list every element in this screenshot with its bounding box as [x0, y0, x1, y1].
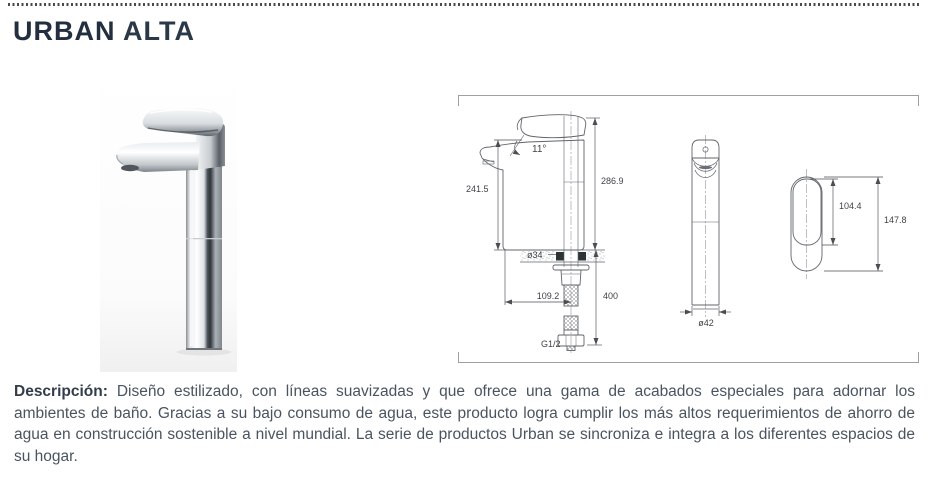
- product-photo-faucet: [100, 68, 237, 372]
- dim-hose-length: 400: [603, 291, 618, 301]
- side-view-dimensions: [494, 118, 602, 345]
- dim-thread-size: G1/2: [541, 339, 561, 349]
- description-text: Diseño estilizado, con líneas suavizadas…: [14, 383, 915, 465]
- faucet-reflection: [190, 170, 193, 346]
- dim-lever-length: 104.4: [839, 201, 862, 211]
- front-view: [692, 135, 719, 317]
- description-label: Descripción:: [14, 383, 108, 400]
- page-title-secondary: ALTA: [123, 16, 195, 46]
- dim-base-diameter: ø42: [698, 318, 714, 328]
- technical-drawing: 241.5 11° 286.9 ø34 109.2 400 G1/2 ø42: [458, 95, 919, 365]
- dim-overall-height: 286.9: [601, 176, 624, 186]
- product-description: Descripción: Diseño estilizado, con líne…: [14, 381, 915, 467]
- dim-handle-angle: 11°: [532, 144, 546, 155]
- dim-hose-offset: 109.2: [537, 291, 560, 301]
- page-title: URBAN ALTA: [13, 16, 195, 46]
- dim-body-height: 241.5: [466, 184, 489, 194]
- faucet-spout: [116, 142, 200, 172]
- dim-mount-hole: ø34: [527, 250, 543, 260]
- dim-overall-length: 147.8: [884, 215, 907, 225]
- page-title-primary: URBAN: [13, 16, 116, 46]
- handle-top-view: [791, 169, 822, 279]
- top-dotted-rule: [8, 3, 921, 6]
- technical-drawing-svg: 241.5 11° 286.9 ø34 109.2 400 G1/2 ø42: [458, 95, 919, 365]
- product-photo: [100, 68, 237, 372]
